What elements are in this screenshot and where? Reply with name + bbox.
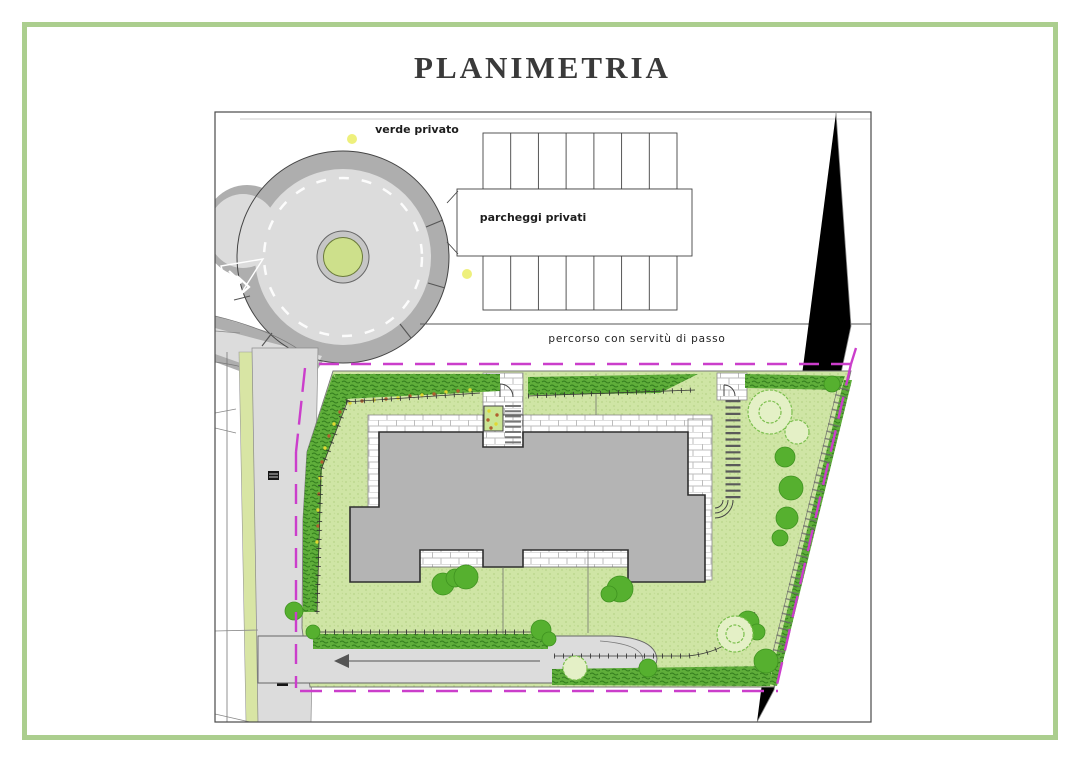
entrance-planter [484,406,503,431]
secondary-entrance-walk [717,373,747,400]
tree [601,586,617,602]
patio-right [523,550,628,567]
tree [306,625,320,639]
tree-outline [785,420,809,444]
lamp-dot [462,269,472,279]
tree [824,376,840,392]
tree-outline [717,616,753,652]
site-plan-drawing: parcheggi privati verde privato percorso… [0,0,1085,767]
parking-row-bottom [483,256,677,310]
boundary-corner [851,348,856,364]
tree [772,530,788,546]
hedge-south-west [313,634,548,649]
tree [775,447,795,467]
parking-row-top [483,133,677,189]
patio-left [420,550,483,567]
tree-outline [563,656,587,680]
tree [776,507,798,529]
tree [454,565,478,589]
label-parcheggi-privati: parcheggi privati [480,211,587,224]
tree [754,649,778,673]
walkway-north [368,415,712,432]
drain-grate [268,471,279,480]
tree [285,602,303,620]
island-green [324,238,363,277]
label-percorso-servitu: percorso con servitù di passo [548,333,725,345]
label-verde-privato: verde privato [375,123,459,136]
lamp-dot [347,134,357,144]
tree [779,476,803,500]
plan-sheet: PLANIMETRIA [0,0,1085,767]
tree [542,632,556,646]
tree [639,659,657,677]
